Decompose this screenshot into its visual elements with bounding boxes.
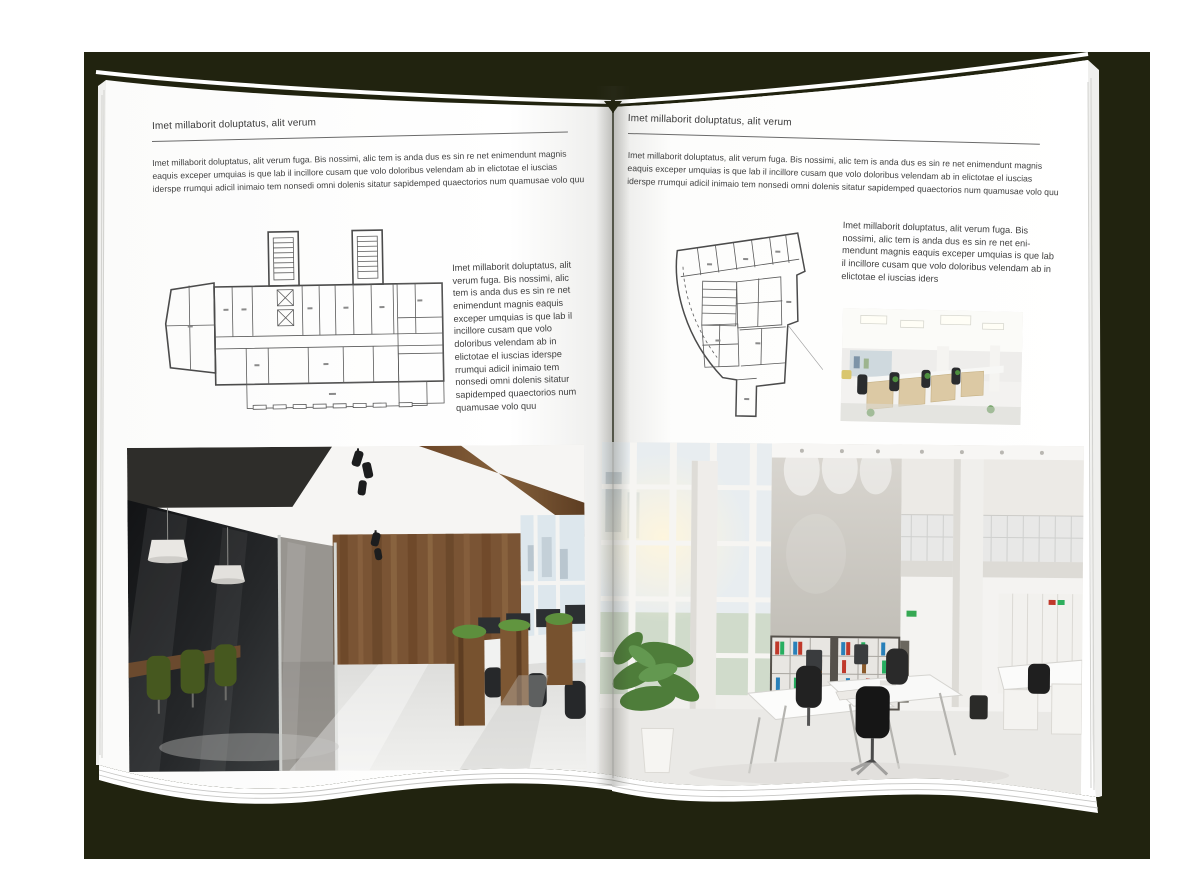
floor-plan-rooms	[679, 233, 826, 382]
right-office-photo	[599, 442, 1084, 794]
left-floor-plan	[156, 221, 451, 418]
magazine-mockup-stage: Imet millaborit doluptatus, alit verum I…	[0, 0, 1200, 891]
floor-plan-interior	[164, 235, 444, 410]
lobby-seat	[841, 370, 851, 379]
glass-meeting-room	[127, 499, 282, 772]
right-floor-plan	[644, 218, 838, 422]
exit-sign	[906, 611, 916, 617]
left-page-aside-paragraph: Imet millaborit doluptatus, alit verum f…	[452, 258, 590, 414]
waste-bin	[970, 695, 988, 719]
left-office-photo	[127, 445, 586, 772]
concrete-wall	[770, 442, 902, 637]
floor-plan-outline	[673, 231, 805, 418]
floor-plan-walls	[164, 229, 444, 386]
exit-sign	[1058, 600, 1065, 605]
small-office-photo	[840, 308, 1023, 425]
safety-sign	[1049, 600, 1056, 605]
ceiling-strip	[772, 443, 1084, 460]
right-page-aside-paragraph: Imet millaborit doluptatus, alit verum f…	[841, 219, 1059, 289]
